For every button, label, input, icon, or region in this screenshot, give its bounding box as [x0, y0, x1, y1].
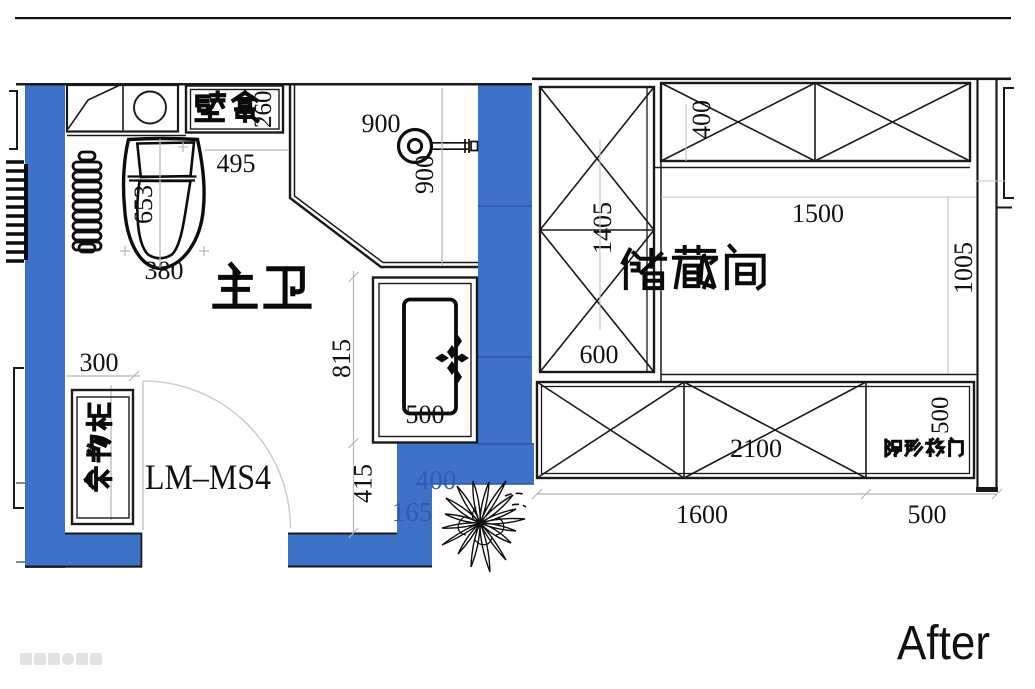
svg-text:1500: 1500: [792, 199, 844, 228]
svg-text:500: 500: [908, 500, 947, 529]
svg-text:1005: 1005: [949, 242, 978, 294]
svg-text:400: 400: [416, 465, 457, 495]
svg-text:2100: 2100: [730, 434, 782, 463]
svg-text:LM–MS4: LM–MS4: [145, 457, 271, 497]
svg-text:500: 500: [927, 397, 954, 435]
svg-text:415: 415: [349, 464, 378, 503]
svg-text:After: After: [897, 617, 990, 670]
svg-text:815: 815: [327, 339, 356, 378]
svg-text:900: 900: [410, 155, 439, 194]
svg-text:1405: 1405: [588, 202, 617, 254]
svg-text:260: 260: [250, 91, 277, 129]
svg-text:1600: 1600: [676, 500, 728, 529]
svg-text:380: 380: [145, 256, 184, 285]
svg-text:495: 495: [217, 149, 256, 178]
svg-text:400: 400: [687, 100, 716, 139]
svg-text:300: 300: [80, 348, 119, 377]
svg-text:165: 165: [392, 497, 433, 527]
svg-text:500: 500: [406, 400, 445, 429]
svg-text:900: 900: [362, 109, 401, 138]
svg-text:600: 600: [580, 340, 619, 369]
svg-text:653: 653: [129, 185, 158, 224]
